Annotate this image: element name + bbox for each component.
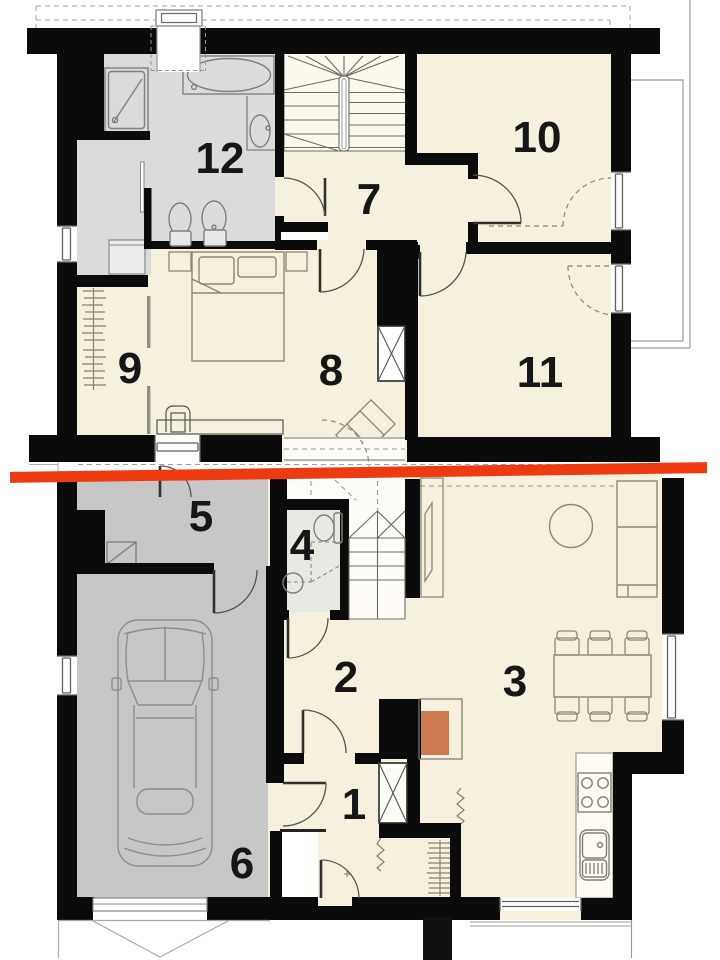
svg-text:10: 10 [513,113,562,162]
svg-text:11: 11 [517,348,564,397]
svg-text:6: 6 [230,839,254,888]
svg-text:12: 12 [196,134,245,183]
svg-text:1: 1 [342,780,366,829]
svg-text:3: 3 [503,657,527,706]
svg-text:8: 8 [319,346,343,395]
svg-text:2: 2 [334,653,358,702]
svg-text:7: 7 [357,175,381,224]
svg-text:9: 9 [118,344,142,393]
svg-text:5: 5 [189,492,213,541]
svg-text:4: 4 [290,521,315,570]
